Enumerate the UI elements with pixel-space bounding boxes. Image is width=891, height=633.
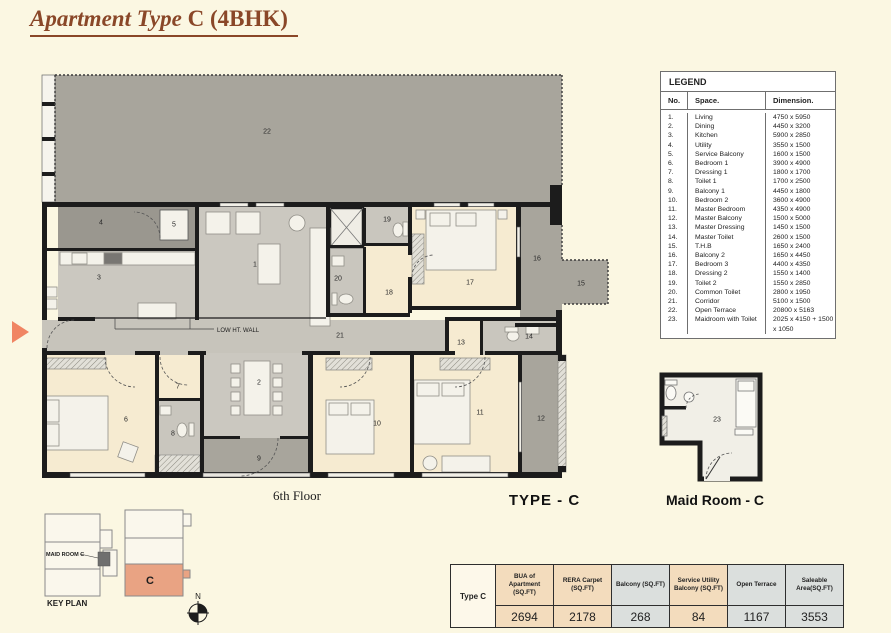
- legend-panel: LEGEND No. Space. Dimension. 1. Living 4…: [660, 71, 836, 339]
- room-number: 23: [713, 417, 721, 424]
- legend-row: 20. Common Toilet 2800 x 1950: [661, 288, 835, 297]
- low-wall-label: LOW HT. WALL: [217, 328, 260, 334]
- area-table-column: RERA Carpet (SQ.FT) 2178: [553, 565, 611, 627]
- compass-north-label: N: [195, 592, 201, 601]
- key-plan: MAID ROOM C C: [40, 508, 200, 600]
- legend-row: 19. Toilet 2 1550 x 2850: [661, 279, 835, 288]
- legend-col-dim: Dimension.: [765, 92, 835, 109]
- legend-row: 1. Living 4750 x 5950: [661, 113, 835, 122]
- legend-row: 23. Maidroom with Toilet 2025 x 4150 + 1…: [661, 315, 835, 333]
- area-table-column: Service Utility Balcony (SQ.FT) 84: [669, 565, 727, 627]
- entry-arrow-icon: [12, 321, 29, 343]
- floor-plan: LOW HT. WALL 1 2 3 4 5 6 7 8 9 10 11 12 …: [10, 62, 615, 494]
- maid-room-plan: 23: [648, 366, 773, 491]
- area-table-row-label: Type C: [451, 565, 495, 627]
- legend-row: 15. T.H.B 1650 x 2400: [661, 242, 835, 251]
- floor-plan-drawing: LOW HT. WALL: [10, 62, 615, 494]
- page: { "page": { "title_italic": "Apartment T…: [0, 0, 891, 631]
- area-table-columns: BUA of Apartment (SQ.FT) 2694 RERA Carpe…: [495, 565, 843, 627]
- area-table-column-value: 1167: [728, 606, 785, 627]
- legend-rows: 1. Living 4750 x 5950 2. Dining 4450 x 3…: [661, 110, 835, 338]
- legend-row: 6. Bedroom 1 3900 x 4900: [661, 159, 835, 168]
- key-plan-drawing: MAID ROOM C C: [40, 508, 200, 600]
- area-table-column: BUA of Apartment (SQ.FT) 2694: [495, 565, 553, 627]
- legend-title: LEGEND: [661, 72, 835, 92]
- area-table-column-header: RERA Carpet (SQ.FT): [554, 565, 611, 606]
- key-plan-caption: KEY PLAN: [47, 599, 87, 608]
- legend-row: 8. Toilet 1 1700 x 2500: [661, 177, 835, 186]
- legend-col-no: No.: [661, 92, 687, 109]
- legend-row: 11. Master Bedroom 4350 x 4900: [661, 205, 835, 214]
- legend-row: 5. Service Balcony 1600 x 1500: [661, 150, 835, 159]
- key-plan-maid-room-label: MAID ROOM C: [46, 552, 84, 558]
- area-table-column: Balcony (SQ.FT) 268: [611, 565, 669, 627]
- legend-col-space: Space.: [687, 92, 765, 109]
- compass: N: [185, 590, 211, 628]
- legend-row: 18. Dressing 2 1550 x 1400: [661, 269, 835, 278]
- area-table-column-header: BUA of Apartment (SQ.FT): [496, 565, 553, 606]
- north-compass-icon: N: [185, 590, 211, 628]
- area-table-column-value: 2178: [554, 606, 611, 627]
- legend-row: 21. Corridor 5100 x 1500: [661, 297, 835, 306]
- area-table-column: Open Terrace 1167: [727, 565, 785, 627]
- legend-row: 2. Dining 4450 x 3200: [661, 122, 835, 131]
- legend-row: 13. Master Dressing 1450 x 1500: [661, 223, 835, 232]
- legend-row: 16. Balcony 2 1650 x 4450: [661, 251, 835, 260]
- area-table-column-value: 3553: [786, 606, 843, 627]
- area-table-column-value: 268: [612, 606, 669, 627]
- legend-row: 3. Kitchen 5900 x 2850: [661, 131, 835, 140]
- legend-row: 14. Master Toilet 2600 x 1500: [661, 233, 835, 242]
- legend-row: 12. Master Balcony 1500 x 5000: [661, 214, 835, 223]
- type-c-label: TYPE - C: [487, 492, 602, 509]
- area-table-column-header: Balcony (SQ.FT): [612, 565, 669, 606]
- legend-row: 17. Bedroom 3 4400 x 4350: [661, 260, 835, 269]
- page-title: Apartment Type C (4BHK): [30, 6, 298, 37]
- area-table-column-header: Saleable Area(SQ.FT): [786, 565, 843, 606]
- legend-row: 4. Utility 3550 x 1500: [661, 141, 835, 150]
- area-table-column-value: 2694: [496, 606, 553, 627]
- floor-label: 6th Floor: [247, 488, 347, 504]
- legend-row: 7. Dressing 1 1800 x 1700: [661, 168, 835, 177]
- legend-header: No. Space. Dimension.: [661, 92, 835, 110]
- area-table-column-value: 84: [670, 606, 727, 627]
- key-plan-unit-c-label: C: [146, 575, 154, 587]
- area-table-column: Saleable Area(SQ.FT) 3553: [785, 565, 843, 627]
- legend-row: 22. Open Terrace 20800 x 5163: [661, 306, 835, 315]
- maid-room-drawing: [648, 366, 773, 491]
- legend-row: 10. Bedroom 2 3600 x 4900: [661, 196, 835, 205]
- maid-room-plan-label: Maid Room - C: [645, 492, 785, 508]
- area-table: Type C BUA of Apartment (SQ.FT) 2694 RER…: [450, 564, 844, 628]
- area-table-column-header: Service Utility Balcony (SQ.FT): [670, 565, 727, 606]
- area-table-column-header: Open Terrace: [728, 565, 785, 606]
- page-title-regular: C (4BHK): [182, 6, 288, 31]
- page-title-italic: Apartment Type: [30, 6, 182, 31]
- legend-row: 9. Balcony 1 4450 x 1800: [661, 187, 835, 196]
